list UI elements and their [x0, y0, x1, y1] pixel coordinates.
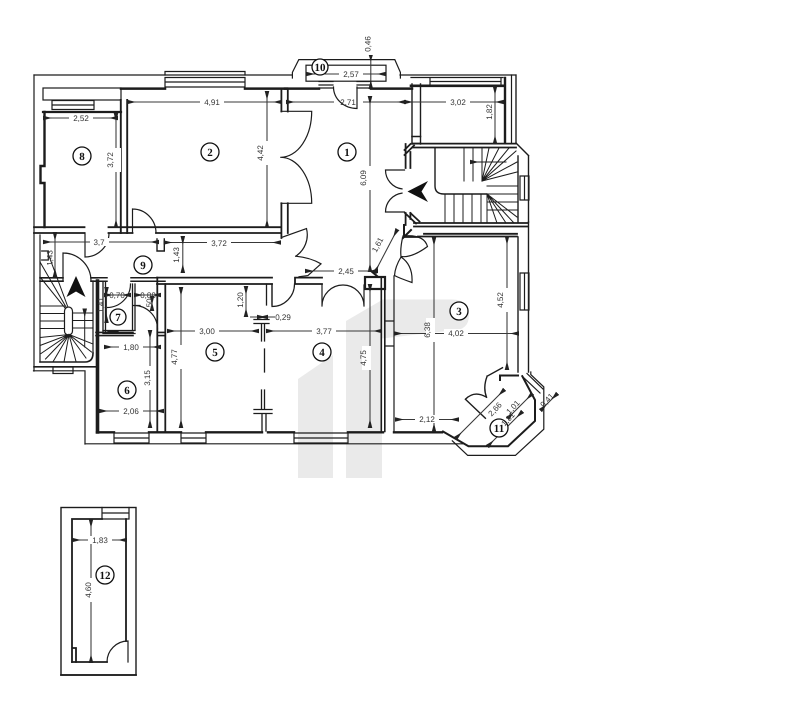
svg-text:2,06: 2,06: [123, 407, 139, 416]
svg-text:0,46: 0,46: [364, 36, 373, 52]
svg-text:3,02: 3,02: [450, 98, 466, 107]
svg-text:2,12: 2,12: [419, 415, 435, 424]
svg-text:3: 3: [456, 306, 462, 318]
svg-text:0,70: 0,70: [109, 291, 125, 300]
svg-text:10: 10: [315, 62, 327, 74]
svg-text:4,02: 4,02: [448, 329, 464, 338]
svg-text:4: 4: [319, 347, 325, 359]
svg-text:1,80: 1,80: [123, 343, 139, 352]
svg-text:2,45: 2,45: [338, 267, 354, 276]
svg-text:6,09: 6,09: [359, 170, 368, 186]
svg-text:4,91: 4,91: [204, 98, 220, 107]
svg-text:3,00: 3,00: [199, 327, 215, 336]
svg-text:4,77: 4,77: [170, 349, 179, 365]
svg-text:9: 9: [140, 260, 146, 272]
svg-text:4,42: 4,42: [256, 145, 265, 161]
svg-text:1,43: 1,43: [46, 250, 55, 266]
svg-text:1: 1: [344, 147, 350, 159]
svg-text:1,83: 1,83: [92, 536, 108, 545]
svg-text:4,60: 4,60: [84, 582, 93, 598]
svg-text:3,7: 3,7: [93, 238, 105, 247]
svg-text:5: 5: [212, 347, 218, 359]
svg-text:7: 7: [115, 312, 121, 324]
svg-text:6,38: 6,38: [423, 322, 432, 338]
svg-text:3,72: 3,72: [106, 152, 115, 168]
svg-text:3,77: 3,77: [316, 327, 332, 336]
svg-text:3,72: 3,72: [211, 239, 227, 248]
svg-text:2,52: 2,52: [73, 114, 89, 123]
svg-text:12: 12: [100, 570, 112, 582]
svg-text:1,43: 1,43: [172, 247, 181, 263]
svg-text:1,20: 1,20: [236, 292, 245, 308]
svg-text:1,82: 1,82: [485, 104, 494, 120]
svg-text:2,71: 2,71: [340, 98, 356, 107]
svg-text:4,52: 4,52: [496, 292, 505, 308]
svg-text:3,15: 3,15: [143, 370, 152, 386]
svg-text:4,75: 4,75: [359, 350, 368, 366]
svg-text:0,29: 0,29: [275, 313, 291, 322]
svg-text:2,57: 2,57: [343, 70, 359, 79]
svg-text:1,41: 1,41: [97, 297, 106, 313]
svg-text:8: 8: [79, 151, 85, 163]
svg-text:2: 2: [207, 147, 213, 159]
svg-text:,50: ,50: [145, 298, 154, 310]
svg-text:6: 6: [124, 385, 130, 397]
